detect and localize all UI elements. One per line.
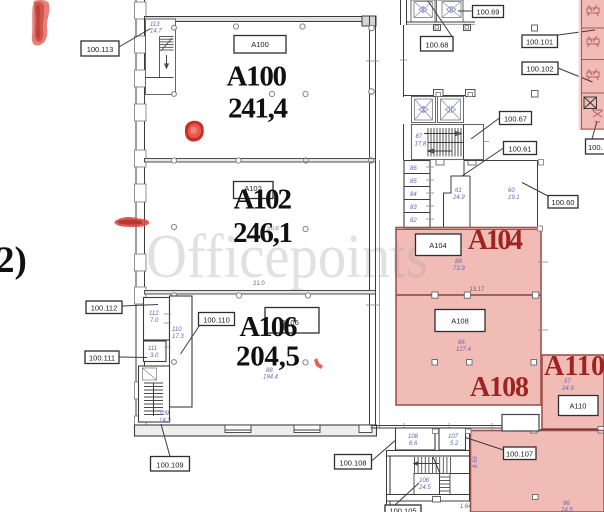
- svg-text:100.107: 100.107: [506, 450, 533, 459]
- svg-text:100.68: 100.68: [426, 41, 449, 50]
- svg-text:7.0: 7.0: [150, 318, 159, 324]
- svg-text:19.1: 19.1: [508, 195, 520, 201]
- svg-text:100.113: 100.113: [87, 45, 114, 54]
- svg-text:83: 83: [410, 205, 417, 211]
- svg-text:14.7: 14.7: [150, 29, 162, 35]
- svg-text:61: 61: [455, 188, 462, 194]
- svg-text:24.5: 24.5: [418, 485, 431, 491]
- svg-text:8.56: 8.56: [473, 456, 479, 468]
- svg-text:100.105: 100.105: [389, 507, 416, 512]
- svg-text:246,1: 246,1: [233, 217, 293, 249]
- svg-text:88: 88: [455, 259, 462, 265]
- svg-text:85: 85: [410, 179, 417, 185]
- svg-text:A100: A100: [227, 61, 288, 93]
- svg-text:A108: A108: [451, 317, 469, 326]
- svg-text:21.0: 21.0: [253, 281, 265, 287]
- svg-text:17.8: 17.8: [415, 142, 427, 148]
- svg-text:100.112: 100.112: [91, 304, 118, 313]
- svg-text:57: 57: [564, 379, 571, 385]
- svg-text:100.67: 100.67: [504, 115, 527, 124]
- svg-text:127.4: 127.4: [456, 347, 472, 353]
- svg-text:109: 109: [159, 411, 170, 417]
- svg-text:88: 88: [266, 368, 273, 374]
- svg-text:1.64: 1.64: [460, 504, 472, 510]
- svg-text:100.101: 100.101: [526, 38, 553, 47]
- svg-text:96: 96: [563, 501, 570, 507]
- svg-text:60: 60: [508, 188, 515, 194]
- svg-text:110: 110: [172, 327, 182, 333]
- svg-text:100.102: 100.102: [526, 65, 553, 74]
- svg-text:100.60: 100.60: [552, 198, 575, 207]
- svg-text:6.6: 6.6: [409, 441, 418, 447]
- svg-text:100.110: 100.110: [203, 316, 230, 325]
- svg-text:A108: A108: [470, 372, 529, 403]
- svg-text:A102: A102: [234, 184, 293, 216]
- svg-text:100.69: 100.69: [477, 8, 500, 17]
- svg-text:100.: 100.: [588, 143, 603, 152]
- svg-text:24.9: 24.9: [452, 195, 465, 201]
- svg-text:241,4: 241,4: [228, 93, 288, 125]
- svg-text:50.8: 50.8: [267, 226, 279, 232]
- svg-text:A104: A104: [429, 241, 447, 250]
- svg-text:14.3: 14.3: [159, 418, 171, 424]
- svg-text:A100: A100: [251, 40, 269, 49]
- svg-text:84: 84: [410, 192, 417, 198]
- svg-text:A106: A106: [240, 312, 298, 343]
- svg-text:13.17: 13.17: [470, 287, 486, 293]
- svg-text:112: 112: [149, 311, 159, 317]
- svg-text:5.2: 5.2: [450, 441, 459, 447]
- svg-text:113: 113: [150, 22, 160, 28]
- svg-text:2): 2): [0, 240, 27, 281]
- svg-text:194.4: 194.4: [263, 375, 279, 381]
- svg-text:100.111: 100.111: [89, 354, 115, 363]
- svg-text:107: 107: [448, 434, 459, 440]
- svg-text:17.3: 17.3: [172, 334, 184, 340]
- svg-text:106: 106: [419, 478, 430, 484]
- svg-text:73.9: 73.9: [453, 266, 465, 272]
- svg-text:A110: A110: [544, 351, 604, 382]
- svg-text:86: 86: [458, 340, 465, 346]
- svg-text:24.9: 24.9: [561, 386, 574, 392]
- svg-text:100.61: 100.61: [509, 145, 532, 154]
- svg-text:87: 87: [416, 134, 423, 140]
- svg-text:A104: A104: [468, 225, 523, 256]
- svg-text:A110: A110: [570, 402, 587, 411]
- svg-text:100.108: 100.108: [339, 459, 366, 468]
- svg-text:24.5: 24.5: [560, 508, 573, 512]
- svg-text:86: 86: [410, 166, 417, 172]
- svg-text:82: 82: [410, 218, 417, 224]
- svg-text:108: 108: [408, 434, 419, 440]
- svg-text:3.0: 3.0: [150, 353, 159, 359]
- svg-text:111: 111: [148, 346, 157, 352]
- svg-text:100.109: 100.109: [156, 461, 183, 470]
